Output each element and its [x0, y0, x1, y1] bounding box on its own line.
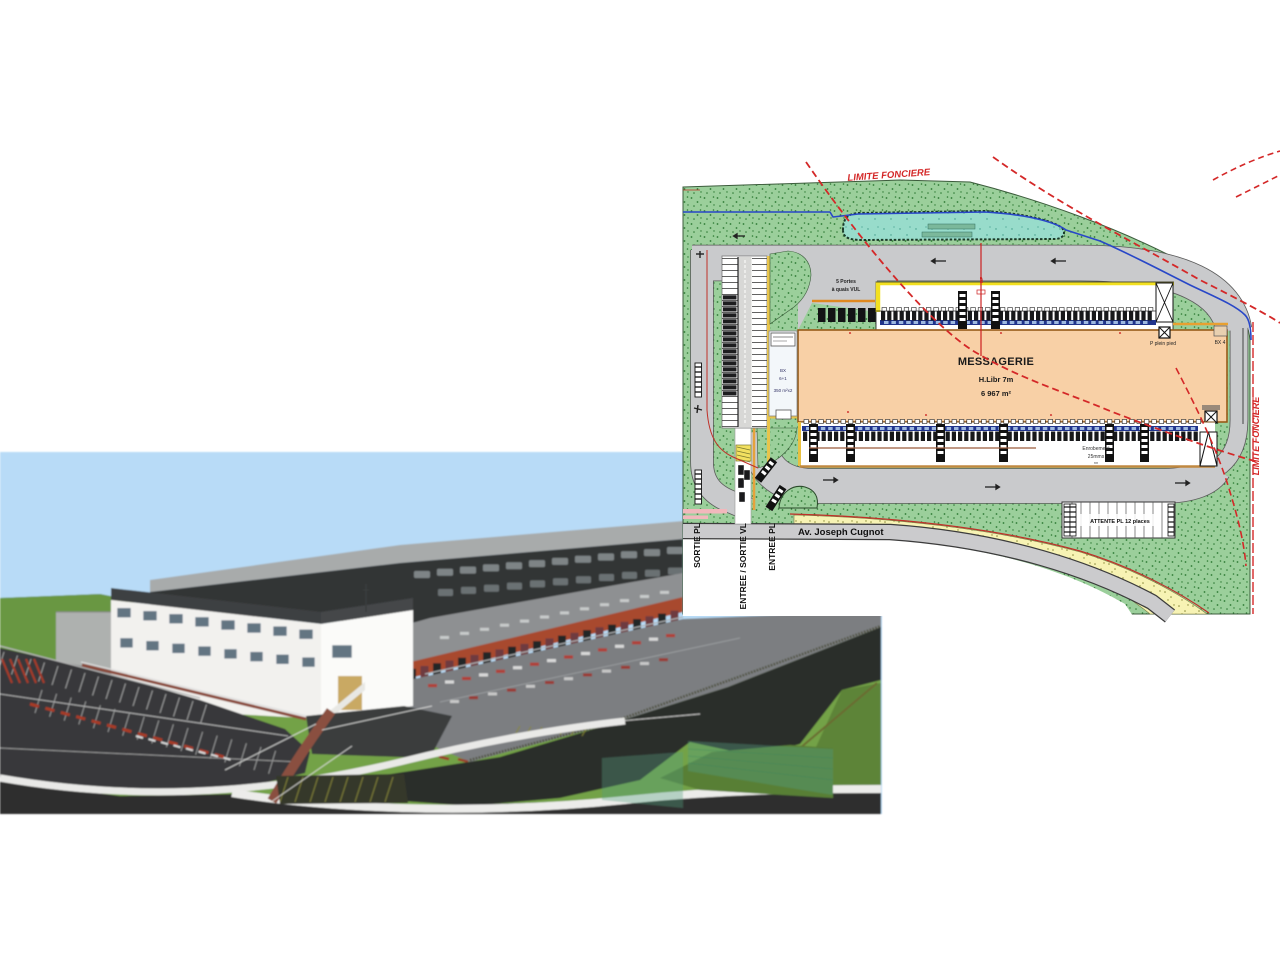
- svg-text:P plein pied: P plein pied: [1150, 341, 1176, 347]
- svg-text:H.Libr 7m: H.Libr 7m: [979, 375, 1014, 384]
- svg-text:MESSAGERIE: MESSAGERIE: [958, 356, 1034, 368]
- svg-text:6+1: 6+1: [779, 376, 787, 381]
- svg-text:ENTREE PL: ENTREE PL: [767, 523, 777, 571]
- svg-text:BX: BX: [780, 368, 786, 373]
- svg-text:350 m²x2: 350 m²x2: [774, 388, 793, 393]
- svg-text:BX 4: BX 4: [1215, 340, 1226, 346]
- svg-text:SORTIE PL: SORTIE PL: [692, 523, 702, 568]
- svg-text:Av. Joseph Cugnot: Av. Joseph Cugnot: [798, 527, 884, 538]
- svg-text:5 Portes: 5 Portes: [836, 279, 856, 285]
- svg-text:ENTREE / SORTIE VL: ENTREE / SORTIE VL: [738, 523, 748, 609]
- svg-text:à quais VUL: à quais VUL: [832, 287, 861, 293]
- svg-text:nn: nn: [1094, 460, 1098, 465]
- svg-text:6 967 m²: 6 967 m²: [981, 389, 1012, 398]
- svg-text:LIMITE FONCIERE: LIMITE FONCIERE: [1251, 396, 1261, 475]
- svg-text:BF: BF: [979, 277, 984, 283]
- svg-text:ATTENTE PL 12 places: ATTENTE PL 12 places: [1090, 519, 1150, 525]
- svg-text:Enrobement: Enrobement: [1082, 446, 1110, 452]
